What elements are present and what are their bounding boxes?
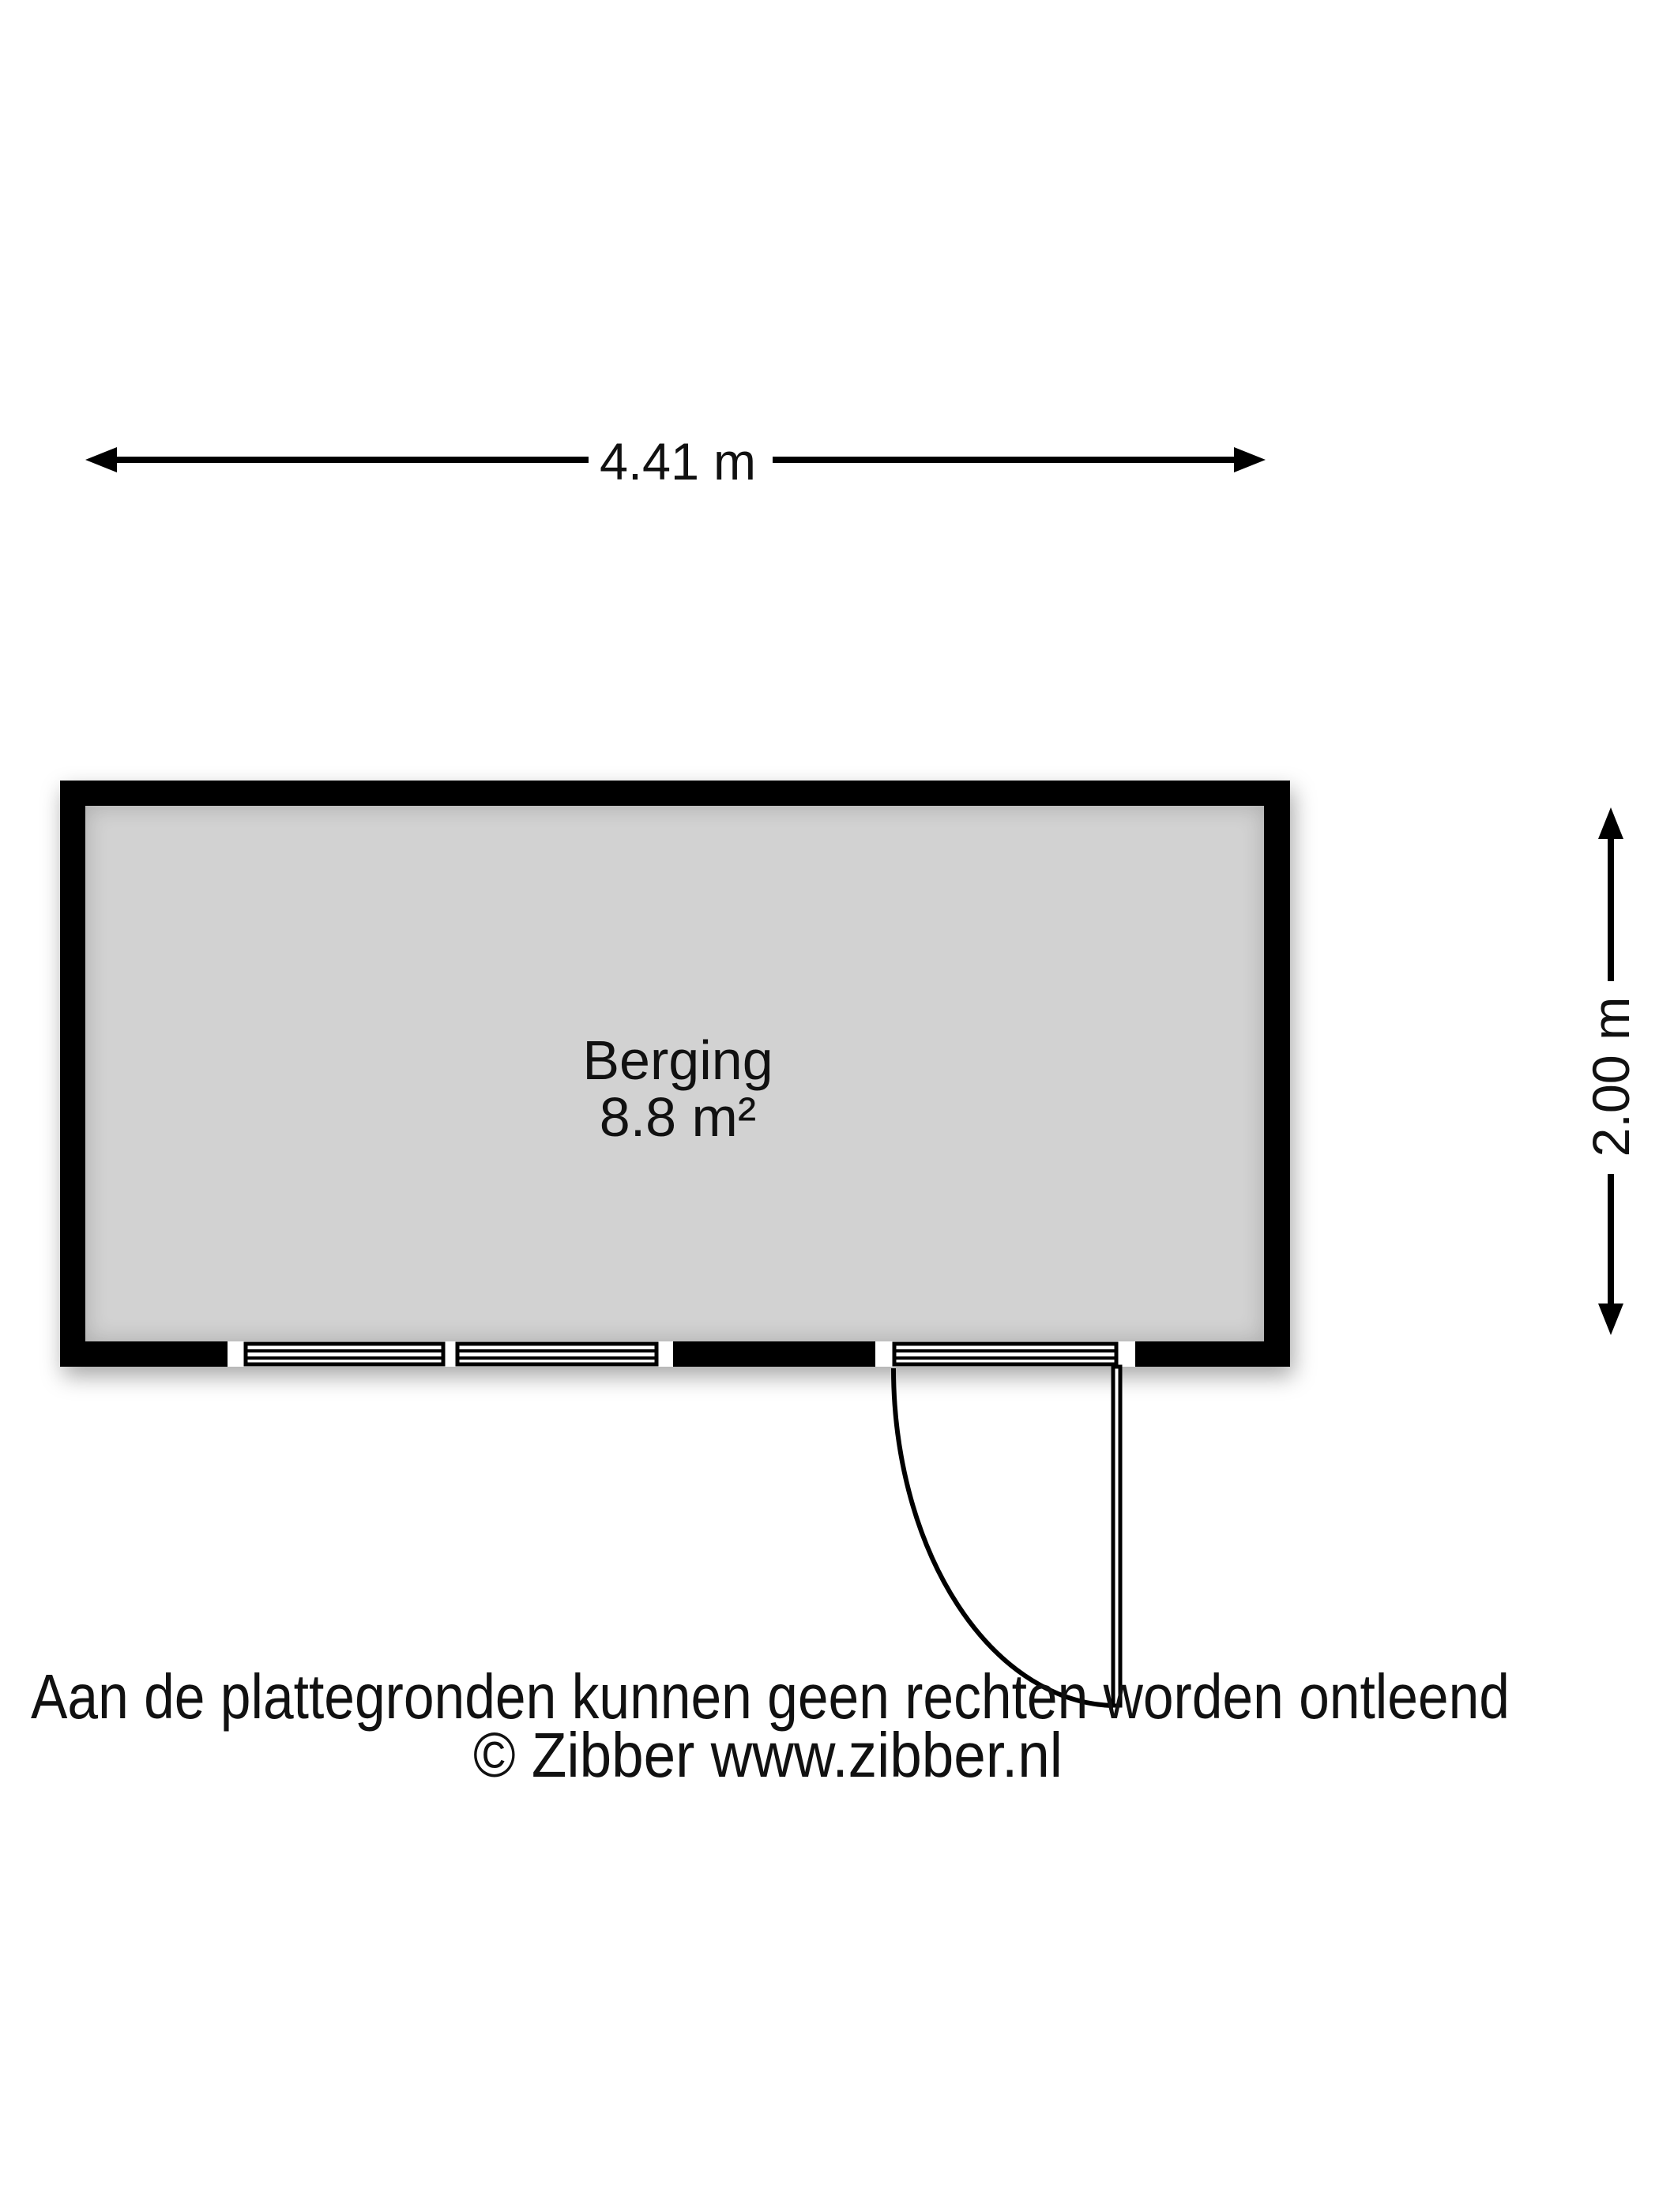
width-dimension-label: 4.41 m [600,432,756,491]
height-dimension-label: 2.00 m [1582,997,1640,1157]
door [875,1341,1135,1706]
floorplan-page: 4.41 m [0,0,1659,2212]
door-leaf [1113,1367,1120,1706]
window-icon [246,1344,443,1364]
width-dimension: 4.41 m [85,432,1266,491]
window-assembly [228,1341,673,1367]
arrow-left-icon [85,447,117,472]
copyright-text: © Zibber www.zibber.nl [473,1720,1063,1790]
arrow-up-icon [1598,807,1623,839]
door-swing-arc [893,1368,1113,1706]
floorplan-svg: 4.41 m [0,0,1659,2212]
arrow-down-icon [1598,1303,1623,1335]
arrow-right-icon [1234,447,1266,472]
footer: Aan de plattegronden kunnen geen rechten… [31,1661,1510,1790]
room-berging: Berging 8.8 m² [60,781,1290,1706]
room-area-label: 8.8 m² [600,1086,756,1148]
door-glazing-icon [894,1344,1116,1364]
window-icon [457,1344,656,1364]
dimension-line-top-segment [1608,836,1614,981]
dimension-line-right-segment [773,457,1236,463]
height-dimension: 2.00 m [1582,807,1640,1335]
room-name-label: Berging [582,1029,773,1091]
dimension-line-left-segment [114,457,589,463]
dimension-line-bottom-segment [1608,1174,1614,1307]
